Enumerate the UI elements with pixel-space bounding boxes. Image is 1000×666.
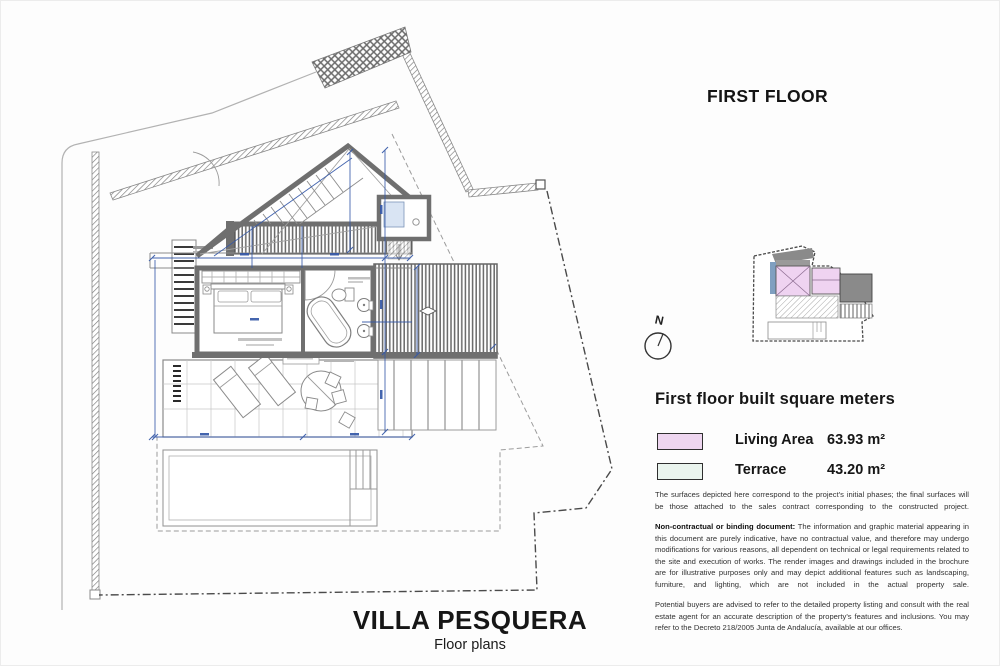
driveway-band <box>312 27 411 88</box>
page-title: FIRST FLOOR <box>707 86 828 107</box>
disclaimer-notes: The surfaces depicted here correspond to… <box>655 489 969 643</box>
swimming-pool <box>163 450 377 526</box>
north-arrow-icon: N <box>632 310 688 368</box>
legend-heading: First floor built square meters <box>655 390 977 409</box>
non-contractual-note: Non-contractual or binding document: The… <box>655 521 969 590</box>
legend-value: 43.20 m² <box>827 462 885 478</box>
non-contractual-body: The information and graphic material app… <box>655 522 969 589</box>
floor-plan-drawing <box>40 8 640 620</box>
surfaces-note: The surfaces depicted here correspond to… <box>655 489 969 512</box>
non-contractual-lead: Non-contractual or binding document: <box>655 522 795 531</box>
floor-plan-inset <box>740 244 884 350</box>
buyers-note: Potential buyers are advised to refer to… <box>655 599 969 634</box>
floor-plan-page: FIRST FLOOR N <box>0 0 1000 666</box>
legend-label: Living Area <box>735 432 813 448</box>
lower-roof <box>374 264 497 358</box>
legend: First floor built square meters Living A… <box>655 390 977 409</box>
terrace-swatch <box>657 463 703 480</box>
legend-row-living-area: Living Area 63.93 m² <box>655 432 977 454</box>
nightstand <box>203 285 211 294</box>
inset-living-area <box>812 268 840 294</box>
inset-terrace <box>776 296 838 318</box>
exterior-stairs <box>172 240 196 333</box>
project-name: VILLA PESQUERA <box>320 605 620 636</box>
living-area-swatch <box>657 433 703 450</box>
terrace-area <box>163 353 412 437</box>
legend-label: Terrace <box>735 462 786 478</box>
legend-row-terrace: Terrace 43.20 m² <box>655 462 977 484</box>
pergola <box>378 360 496 430</box>
north-label: N <box>654 313 665 328</box>
wardrobe <box>202 271 300 283</box>
legend-value: 63.93 m² <box>827 432 885 448</box>
project-subtitle: Floor plans <box>320 637 620 653</box>
nightstand <box>285 285 293 294</box>
inset-roof <box>840 274 872 302</box>
